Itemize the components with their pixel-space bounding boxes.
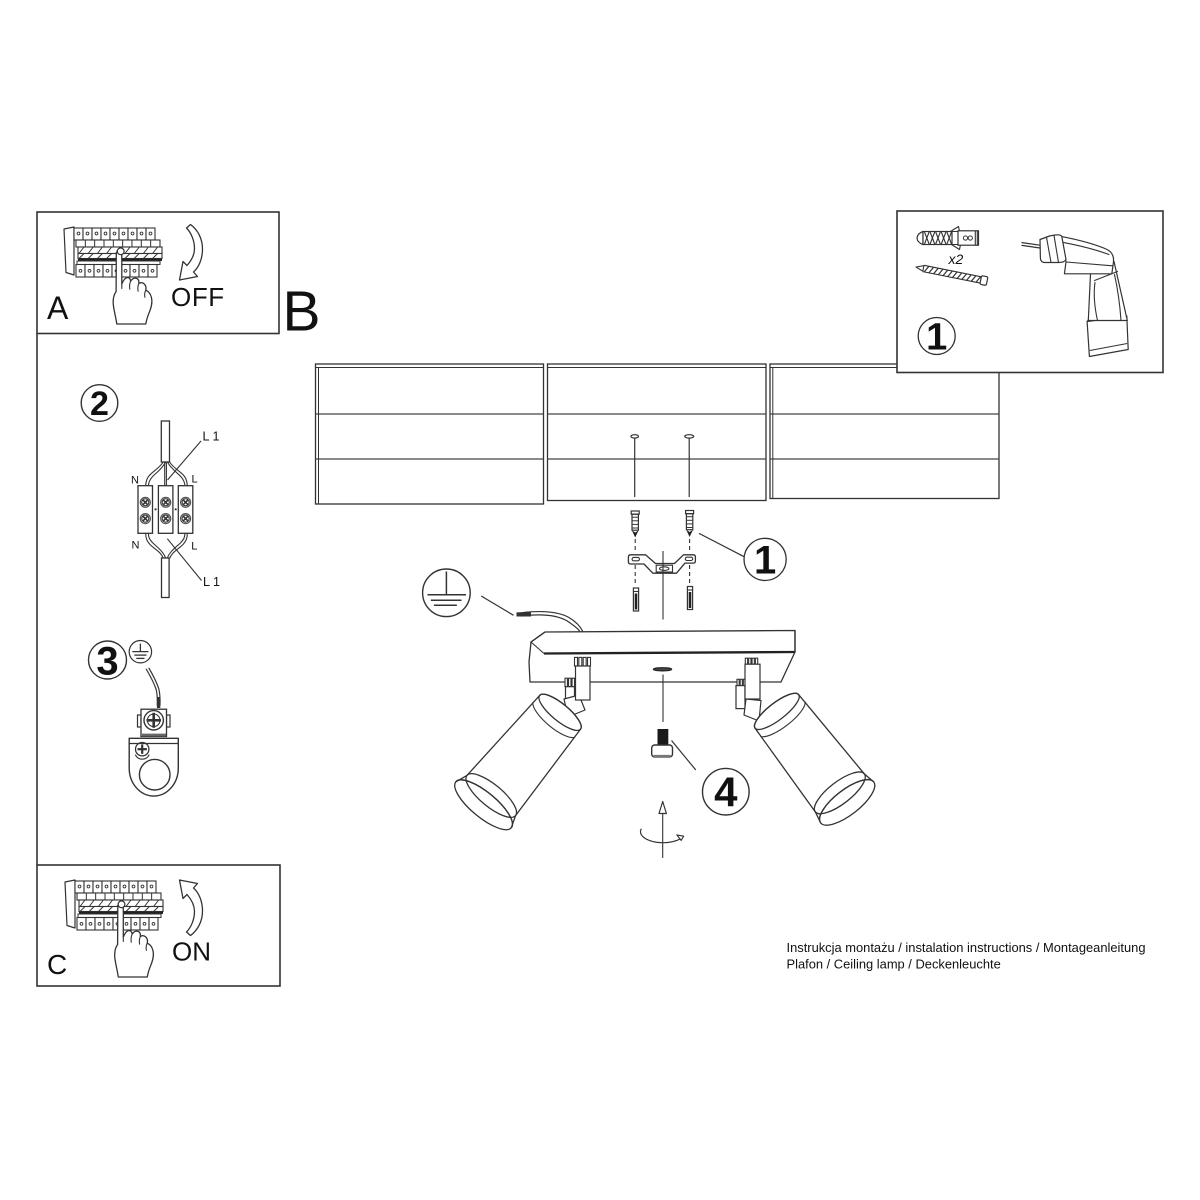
svg-text:L 1: L 1 bbox=[203, 430, 220, 444]
svg-text:Instrukcja montażu / instalati: Instrukcja montażu / instalation instruc… bbox=[787, 940, 1146, 955]
svg-text:1: 1 bbox=[926, 317, 947, 359]
svg-text:L: L bbox=[191, 541, 197, 553]
svg-text:L: L bbox=[192, 474, 198, 486]
svg-text:OFF: OFF bbox=[171, 282, 225, 312]
svg-text:x2: x2 bbox=[948, 251, 964, 267]
svg-text:N: N bbox=[132, 540, 140, 552]
svg-text:N: N bbox=[131, 475, 139, 487]
svg-text:B: B bbox=[283, 280, 321, 344]
svg-text:4: 4 bbox=[714, 769, 738, 816]
svg-text:2: 2 bbox=[90, 385, 109, 423]
svg-text:3: 3 bbox=[96, 639, 118, 683]
svg-text:L 1: L 1 bbox=[203, 575, 220, 589]
svg-text:C: C bbox=[47, 949, 67, 980]
svg-text:ON: ON bbox=[172, 937, 211, 967]
svg-text:A: A bbox=[47, 290, 69, 326]
svg-text:1: 1 bbox=[754, 539, 776, 583]
svg-text:Plafon / Ceiling lamp / Decken: Plafon / Ceiling lamp / Deckenleuchte bbox=[787, 957, 1001, 972]
